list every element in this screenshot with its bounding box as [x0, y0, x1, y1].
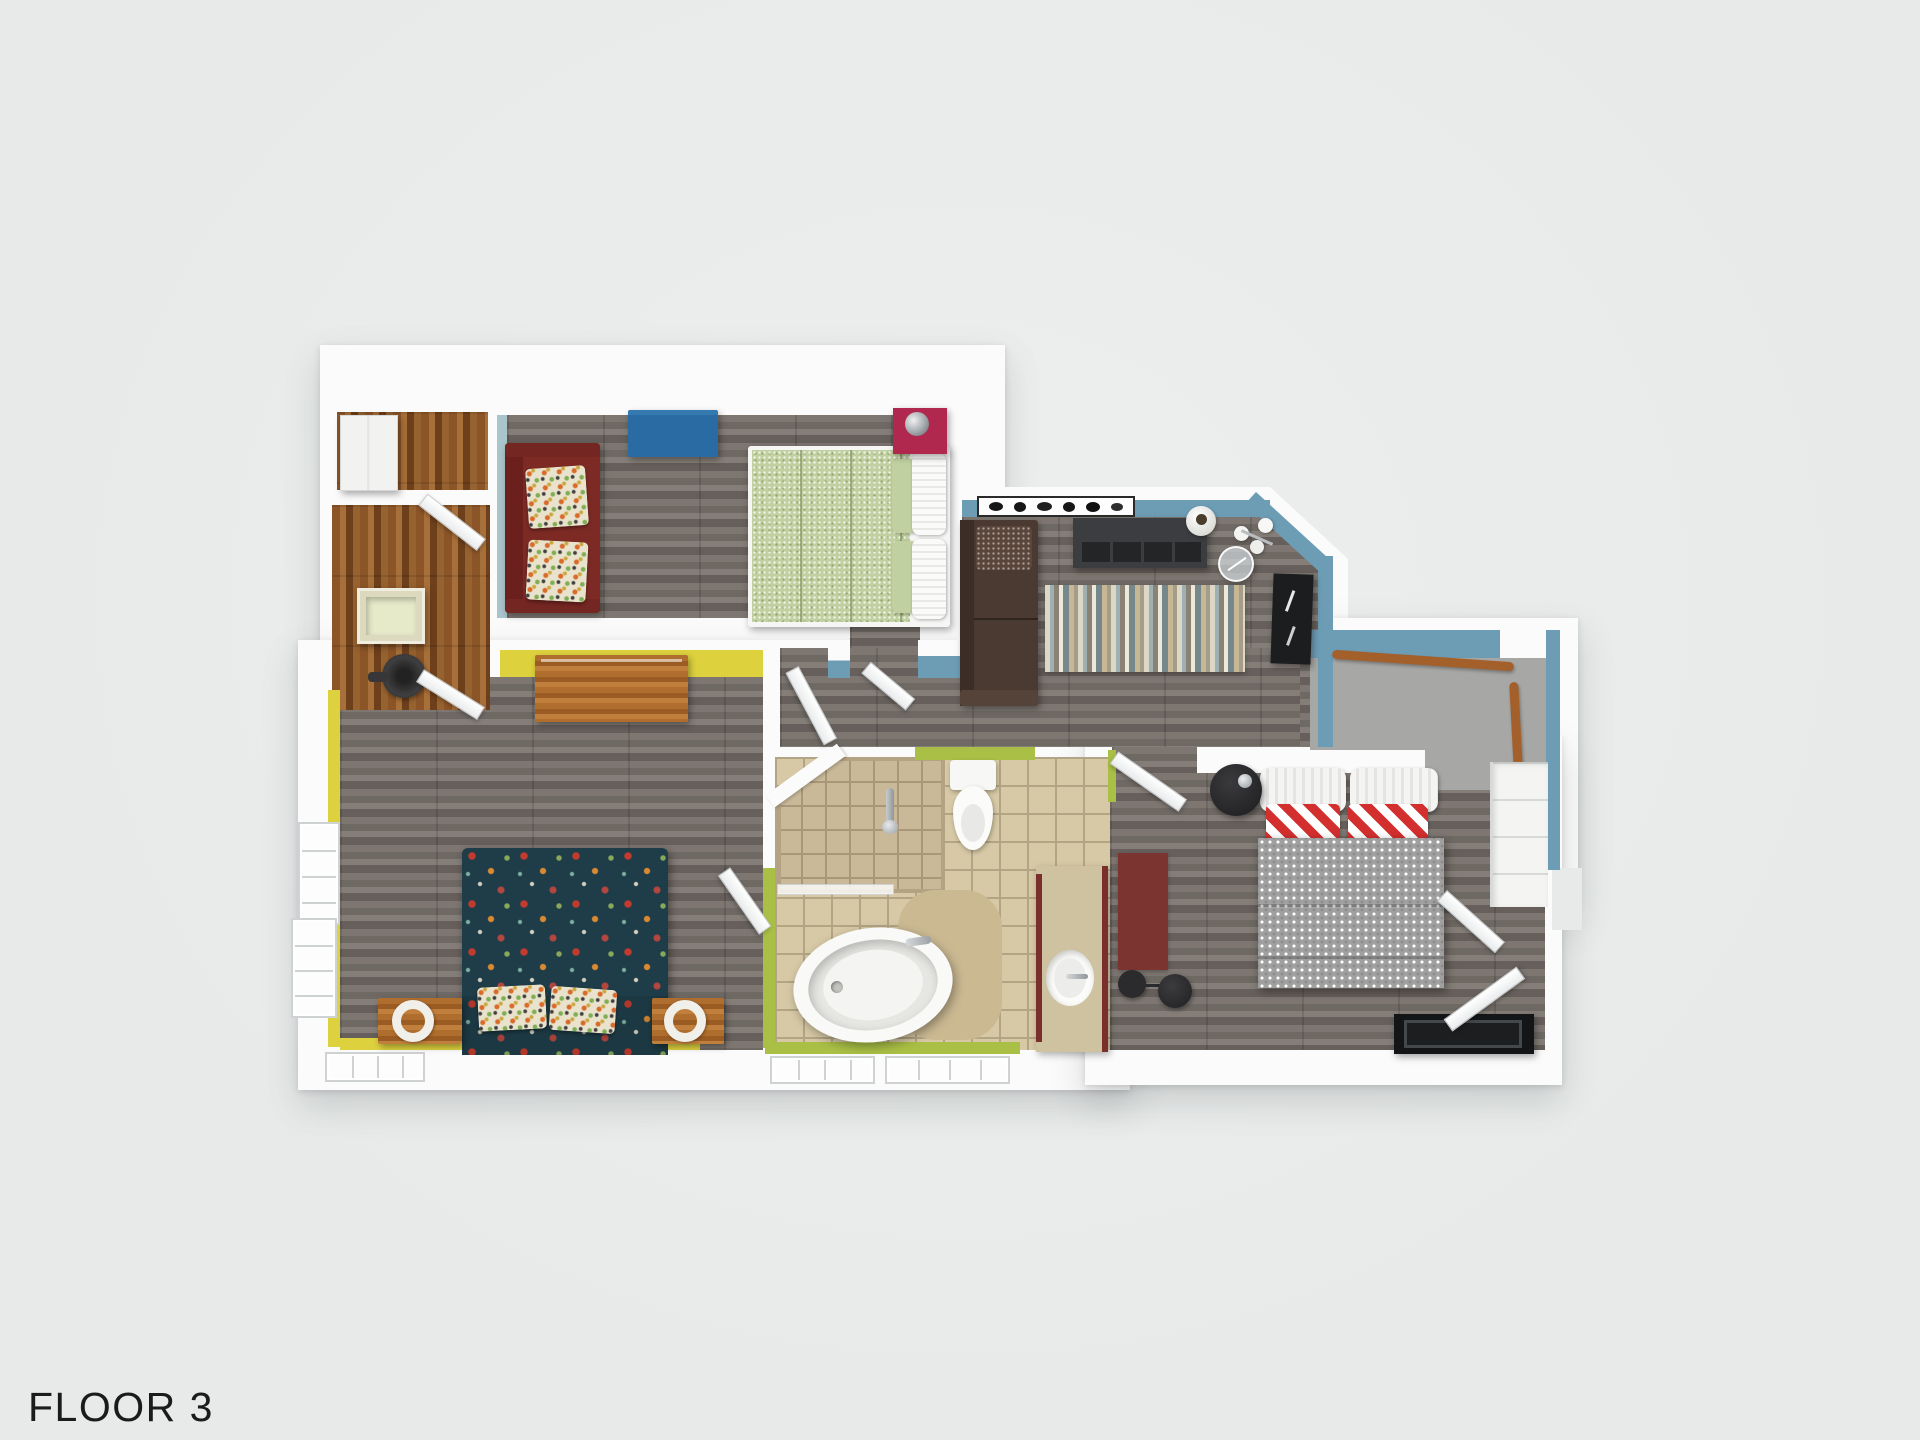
window-bathroom-south-1 [770, 1056, 875, 1084]
lamp-globe [1258, 518, 1273, 533]
art-circle [1014, 502, 1026, 512]
desk-wood [535, 655, 688, 722]
floor-lamp-black [1118, 966, 1194, 1010]
hall-wall-stub-east [918, 640, 960, 678]
rug-maroon [1118, 853, 1168, 970]
floor-plan [0, 0, 1920, 1440]
nightstand-round-black [1210, 764, 1262, 816]
hall-wall-stub-west [828, 648, 850, 678]
sofa-brown [960, 520, 1038, 706]
storage-box-interior [366, 597, 416, 635]
tv-console-living [1270, 573, 1313, 664]
fan-unit [368, 650, 424, 702]
nightstand-left [378, 998, 462, 1044]
duvet-fold-lines [752, 450, 910, 622]
toilet-seat-ring [961, 804, 985, 842]
render-page: { "title": { "text": "FLOOR 3" }, "palet… [0, 0, 1920, 1440]
bed-floral-pillow-2 [549, 986, 618, 1034]
window-bedroom-bl-west-1 [298, 822, 340, 925]
storage-box-closet-b [357, 588, 425, 644]
sofa-red-armrest-bottom [505, 599, 600, 613]
bed-green-pillow-white-2 [912, 539, 946, 619]
sofa-brown-pillow [976, 526, 1032, 570]
toilet [950, 760, 996, 852]
sofa-brown-cushion-line [974, 618, 1038, 620]
sofa-red [505, 443, 600, 613]
lamp-chrome [905, 412, 929, 436]
wardrobe-closet-a [340, 415, 398, 491]
shelf-compartments [1079, 542, 1201, 562]
bed-floral-duvet [462, 848, 668, 1003]
nightstand-right [652, 998, 724, 1044]
bed-green [748, 443, 950, 630]
window-bedroom-bl-south [325, 1052, 425, 1082]
vanity-side-maroon-left [1036, 874, 1042, 1042]
lamp-globe [1250, 540, 1264, 554]
floor-lamp-table [1158, 974, 1192, 1008]
window-bathroom-south-2 [885, 1056, 1010, 1084]
vanity-sink [1046, 950, 1094, 1006]
art-circle [1063, 502, 1075, 512]
bed-green-duvet [752, 450, 910, 622]
art-circle [989, 502, 1003, 511]
art-circle [1111, 503, 1123, 511]
art-circle [1037, 502, 1052, 511]
shower-fixture-chrome [886, 788, 894, 826]
bed-green-pillow-white-1 [912, 453, 946, 535]
nightstand-crimson [893, 408, 947, 454]
bed-gray-duvet [1258, 838, 1444, 988]
vanity-side-maroon-right [1102, 866, 1108, 1052]
nightstand-lamp-chrome [1238, 774, 1252, 788]
vanity [1036, 866, 1108, 1052]
sofa-red-backrest [505, 443, 523, 613]
fan-base [368, 672, 388, 682]
window-bedroom-bl-west-2 [291, 918, 337, 1018]
bed-floral [462, 848, 668, 1055]
shower-head [882, 820, 898, 834]
sofa-red-armrest-top [505, 443, 600, 457]
table-lamp-top-hole [1196, 514, 1207, 525]
bathroom-west-wall-face [763, 868, 775, 1048]
sink-faucet [1066, 974, 1088, 979]
tv-console-top [1404, 1020, 1522, 1048]
wall-art-circles [977, 496, 1135, 517]
floor-label: FLOOR 3 [28, 1384, 214, 1431]
bathroom-north-wall-face [915, 747, 1035, 760]
shower-glass-panel [777, 884, 894, 895]
bed-gray [1256, 766, 1444, 988]
striped-rug [1045, 585, 1245, 672]
desk-edge-highlight [541, 659, 682, 662]
glass-table-highlight [1227, 557, 1246, 571]
bed-floral-pillow-1 [477, 984, 547, 1031]
sofa-brown-armrest [960, 690, 1038, 706]
bathtub [786, 917, 960, 1052]
glass-side-table [1218, 546, 1254, 582]
sofa-pillow-floral-1 [525, 465, 589, 529]
duvet-fold [1258, 904, 1444, 907]
sofa-pillow-floral-2 [525, 539, 588, 602]
tv-screen-reflection [1286, 626, 1296, 646]
sofa-brown-backrest [960, 520, 974, 706]
exterior-notch [1552, 868, 1582, 930]
duvet-fold [1258, 956, 1444, 959]
ottoman-blue [628, 410, 718, 457]
closet-shelving-right [1490, 762, 1548, 907]
art-circle [1086, 502, 1100, 512]
tv-screen-reflection [1285, 590, 1295, 612]
ring-lamp-right [664, 1000, 706, 1042]
stairwell-east-wall-face [1546, 630, 1560, 870]
ring-lamp-left [392, 1000, 434, 1042]
table-lamp-white [1186, 506, 1216, 546]
